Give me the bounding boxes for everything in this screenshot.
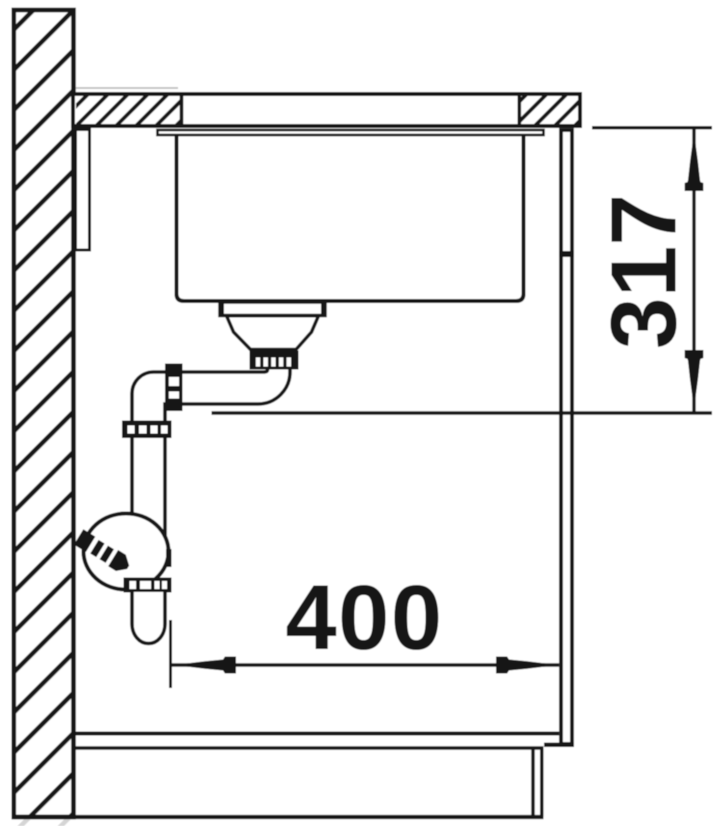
svg-text:400: 400: [286, 567, 444, 669]
svg-text:317: 317: [592, 194, 696, 349]
